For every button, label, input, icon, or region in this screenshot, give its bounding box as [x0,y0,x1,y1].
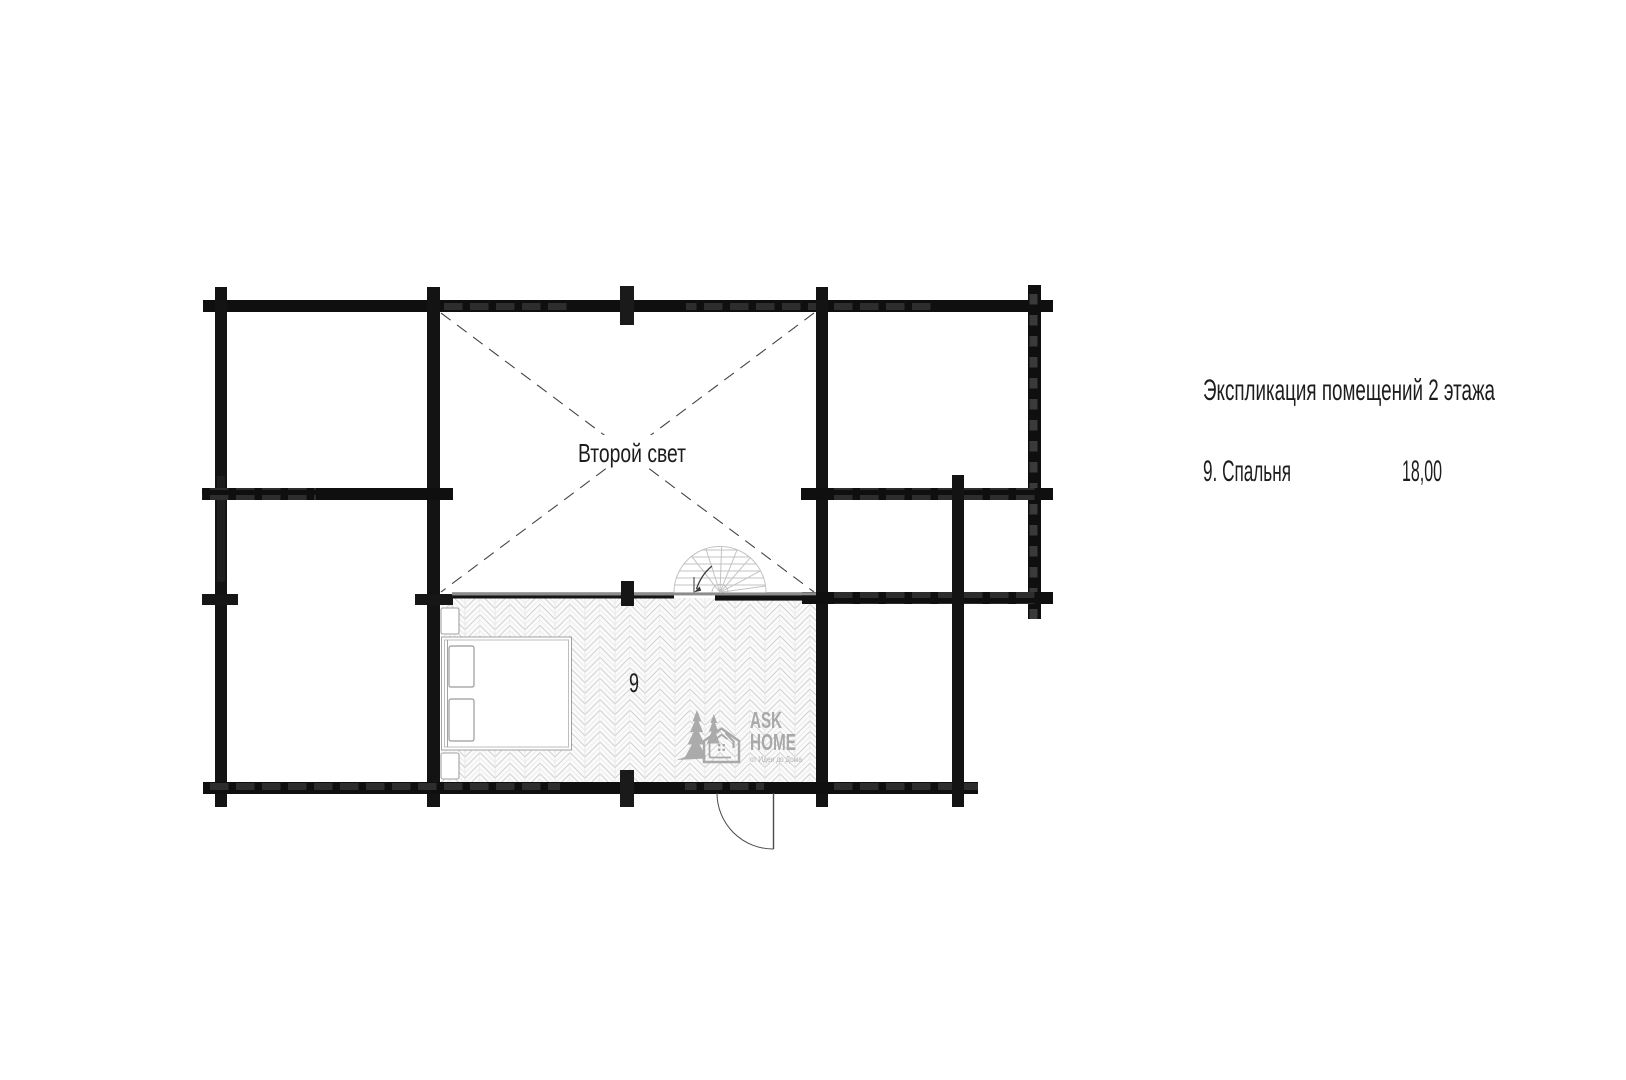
svg-text:HOME: HOME [750,729,796,755]
svg-text:от Идеи до Дома: от Идеи до Дома [750,754,802,764]
svg-text:Экспликация помещений 2 этажа: Экспликация помещений 2 этажа [1203,374,1495,407]
svg-text:Второй свет: Второй свет [578,438,686,468]
svg-text:9: 9 [629,668,639,698]
svg-text:9. Спальня: 9. Спальня [1203,455,1291,488]
svg-text:18,00: 18,00 [1402,455,1442,488]
